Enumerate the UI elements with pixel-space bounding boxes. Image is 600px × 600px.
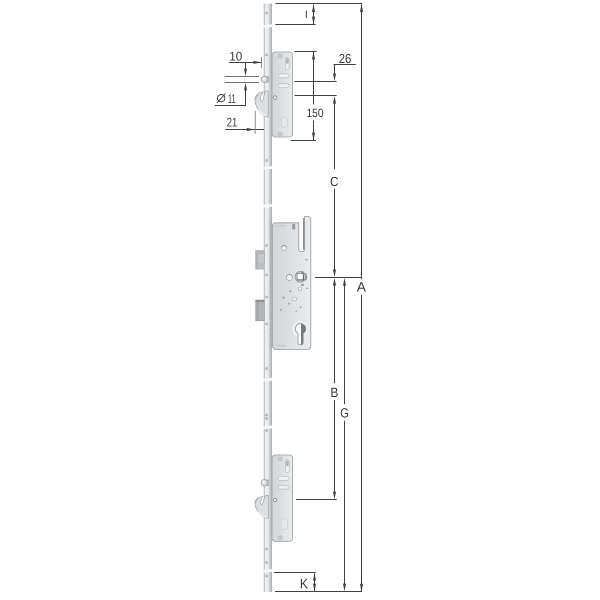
- svg-text:11: 11: [228, 92, 236, 106]
- svg-text:B: B: [330, 385, 338, 400]
- svg-text:10: 10: [229, 50, 242, 64]
- svg-text:21: 21: [227, 116, 238, 130]
- svg-text:G: G: [340, 405, 349, 420]
- svg-text:K: K: [300, 576, 309, 592]
- svg-text:A: A: [357, 279, 367, 294]
- svg-text:I: I: [305, 9, 308, 21]
- svg-text:C: C: [330, 174, 339, 189]
- svg-text:150: 150: [307, 106, 324, 120]
- svg-text:26: 26: [339, 51, 352, 66]
